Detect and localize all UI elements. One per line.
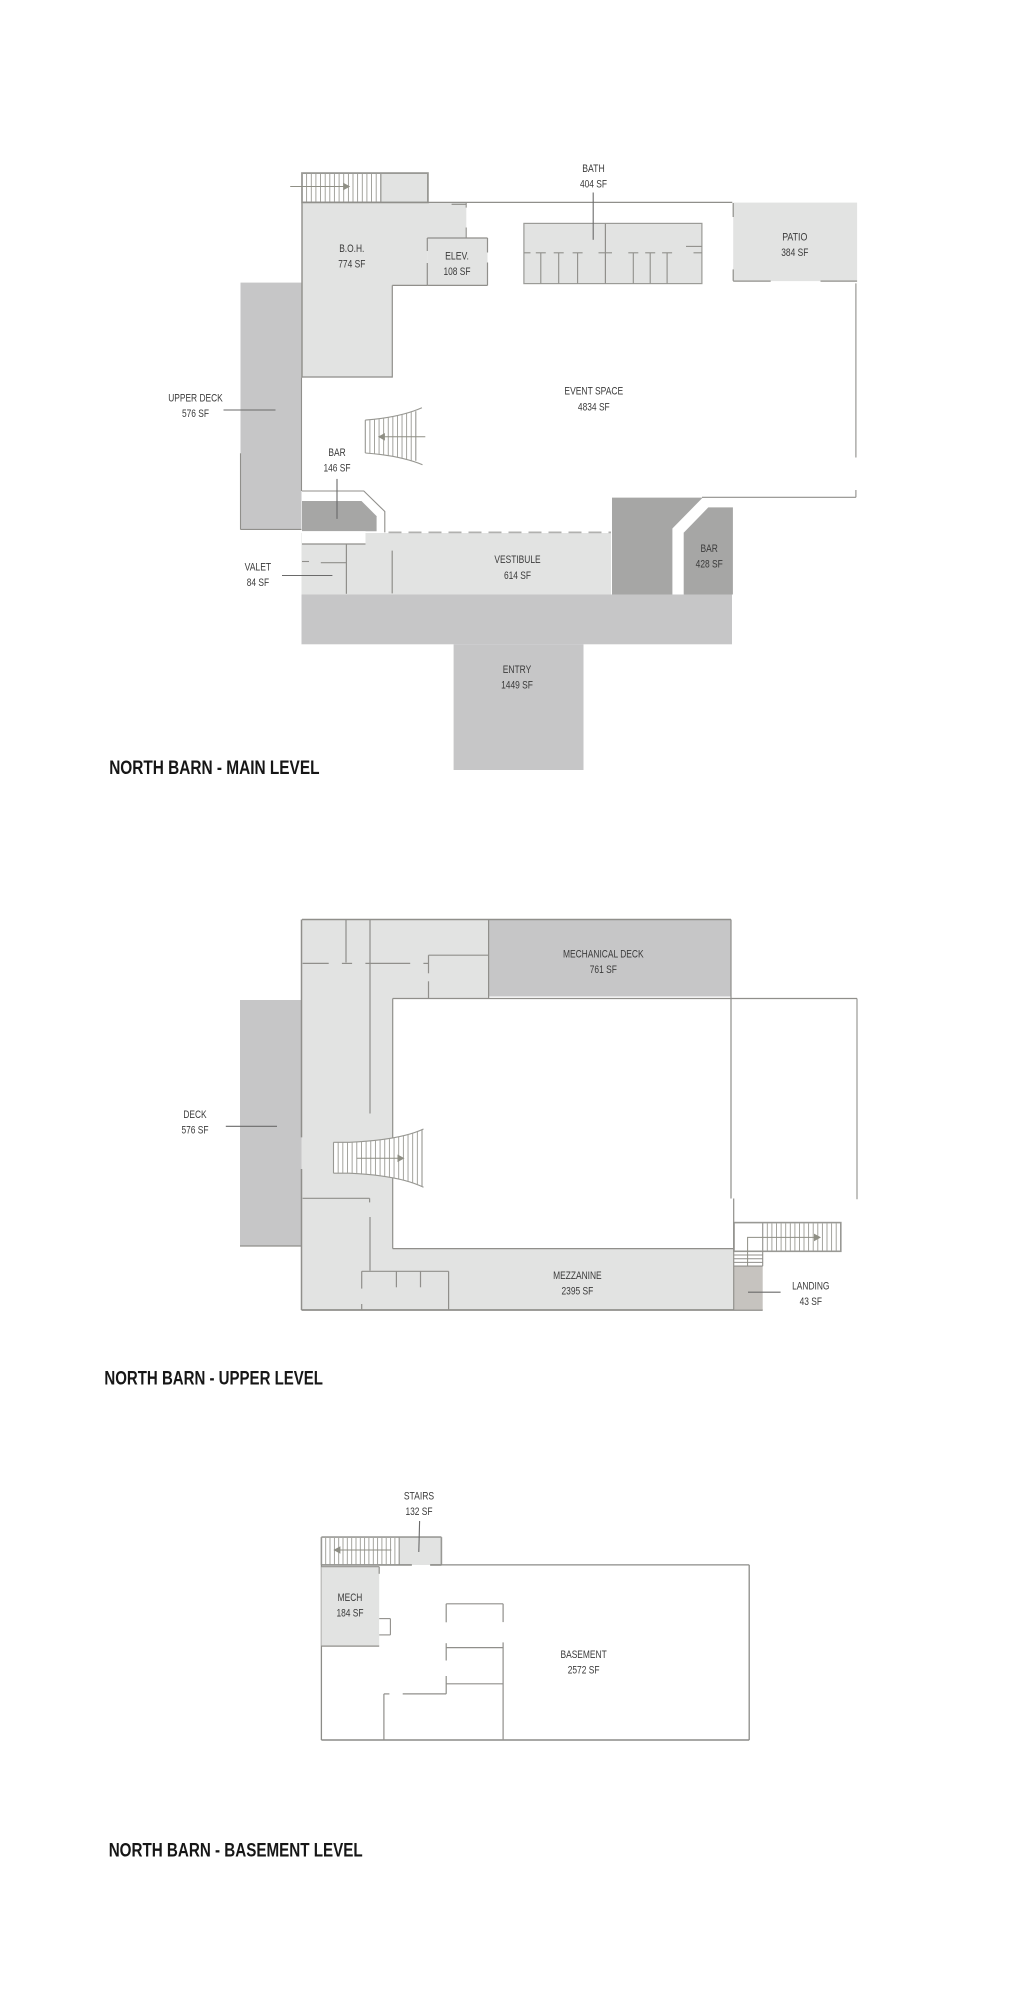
svg-text:VESTIBULE: VESTIBULE [494, 554, 540, 566]
svg-text:1449 SF: 1449 SF [501, 680, 533, 692]
svg-text:MECHANICAL DECK: MECHANICAL DECK [563, 949, 644, 961]
svg-text:ENTRY: ENTRY [503, 664, 532, 676]
svg-text:BATH: BATH [582, 163, 604, 175]
svg-text:84 SF: 84 SF [247, 577, 270, 589]
svg-text:BAR: BAR [328, 447, 345, 459]
svg-text:UPPER DECK: UPPER DECK [168, 392, 223, 404]
svg-text:2395 SF: 2395 SF [562, 1285, 594, 1297]
svg-text:NORTH BARN - UPPER LEVEL: NORTH BARN - UPPER LEVEL [104, 1369, 323, 1390]
svg-text:108 SF: 108 SF [443, 266, 470, 278]
svg-text:184 SF: 184 SF [336, 1608, 363, 1620]
svg-text:LANDING: LANDING [792, 1280, 829, 1292]
svg-text:MECH: MECH [338, 1592, 363, 1604]
svg-text:BAR: BAR [701, 543, 718, 555]
svg-text:BASEMENT: BASEMENT [561, 1649, 607, 1661]
svg-text:STAIRS: STAIRS [404, 1490, 434, 1502]
svg-text:4834 SF: 4834 SF [578, 401, 610, 413]
svg-text:132 SF: 132 SF [405, 1506, 432, 1518]
svg-text:576 SF: 576 SF [181, 1125, 208, 1137]
svg-text:MEZZANINE: MEZZANINE [553, 1270, 602, 1282]
svg-text:146 SF: 146 SF [323, 463, 350, 475]
svg-text:NORTH BARN - MAIN LEVEL: NORTH BARN - MAIN LEVEL [109, 758, 319, 779]
svg-text:614 SF: 614 SF [504, 570, 531, 582]
svg-text:NORTH BARN - BASEMENT LEVEL: NORTH BARN - BASEMENT LEVEL [109, 1841, 363, 1862]
svg-text:774 SF: 774 SF [338, 259, 365, 271]
svg-text:428 SF: 428 SF [696, 559, 723, 571]
svg-text:B.O.H.: B.O.H. [339, 243, 364, 255]
svg-text:384 SF: 384 SF [781, 247, 808, 259]
svg-text:PATIO: PATIO [782, 231, 807, 243]
svg-text:43 SF: 43 SF [800, 1296, 823, 1308]
svg-text:404 SF: 404 SF [580, 179, 607, 191]
svg-text:VALET: VALET [245, 562, 272, 574]
svg-text:2572 SF: 2572 SF [568, 1665, 600, 1677]
svg-text:761 SF: 761 SF [590, 964, 617, 976]
svg-text:576 SF: 576 SF [182, 408, 209, 420]
svg-text:ELEV.: ELEV. [445, 250, 469, 262]
svg-text:DECK: DECK [183, 1109, 207, 1121]
svg-text:EVENT SPACE: EVENT SPACE [564, 386, 623, 398]
